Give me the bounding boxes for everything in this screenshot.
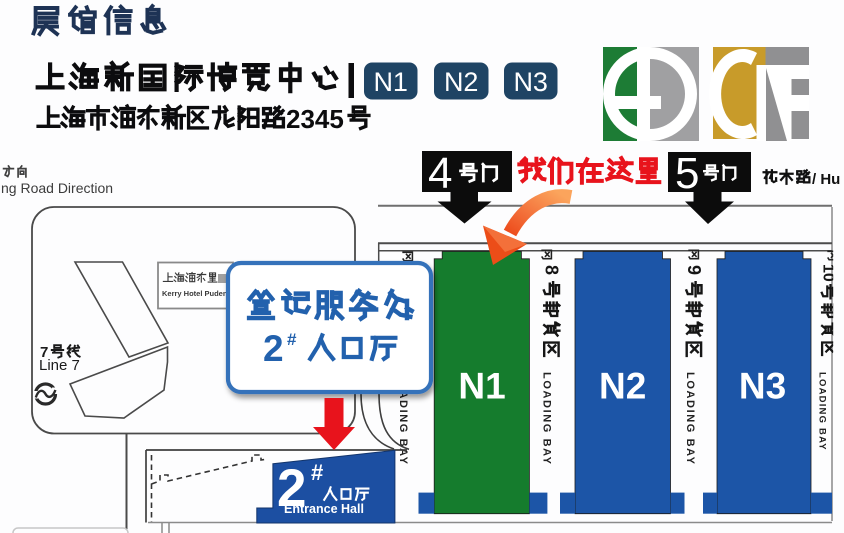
svg-text:Kerry Hotel Puden: Kerry Hotel Puden	[162, 289, 228, 298]
svg-text:LOADING BAY: LOADING BAY	[684, 372, 696, 466]
svg-text:ng Road Direction: ng Road Direction	[1, 180, 113, 196]
svg-text:N3: N3	[513, 67, 548, 97]
svg-text:Line 7: Line 7	[39, 357, 80, 374]
svg-text:N2: N2	[444, 67, 479, 97]
svg-text:9: 9	[684, 265, 704, 275]
svg-text:N1: N1	[458, 366, 505, 407]
svg-text:2: 2	[263, 328, 284, 369]
svg-text:N3: N3	[739, 366, 786, 407]
svg-text:#: #	[287, 330, 297, 349]
svg-text:LOADING BAY: LOADING BAY	[541, 372, 553, 466]
svg-text:#: #	[311, 460, 323, 485]
svg-text:Entrance Hall: Entrance Hall	[284, 502, 364, 516]
svg-text:5: 5	[675, 149, 699, 198]
svg-text:4: 4	[428, 149, 452, 198]
svg-text:8: 8	[542, 265, 562, 275]
svg-text:/ Hu: / Hu	[812, 171, 840, 188]
svg-text:2345: 2345	[286, 104, 344, 134]
svg-text:N2: N2	[599, 366, 646, 407]
svg-text:LOADING BAY: LOADING BAY	[817, 372, 828, 451]
svg-text:N1: N1	[373, 67, 408, 97]
